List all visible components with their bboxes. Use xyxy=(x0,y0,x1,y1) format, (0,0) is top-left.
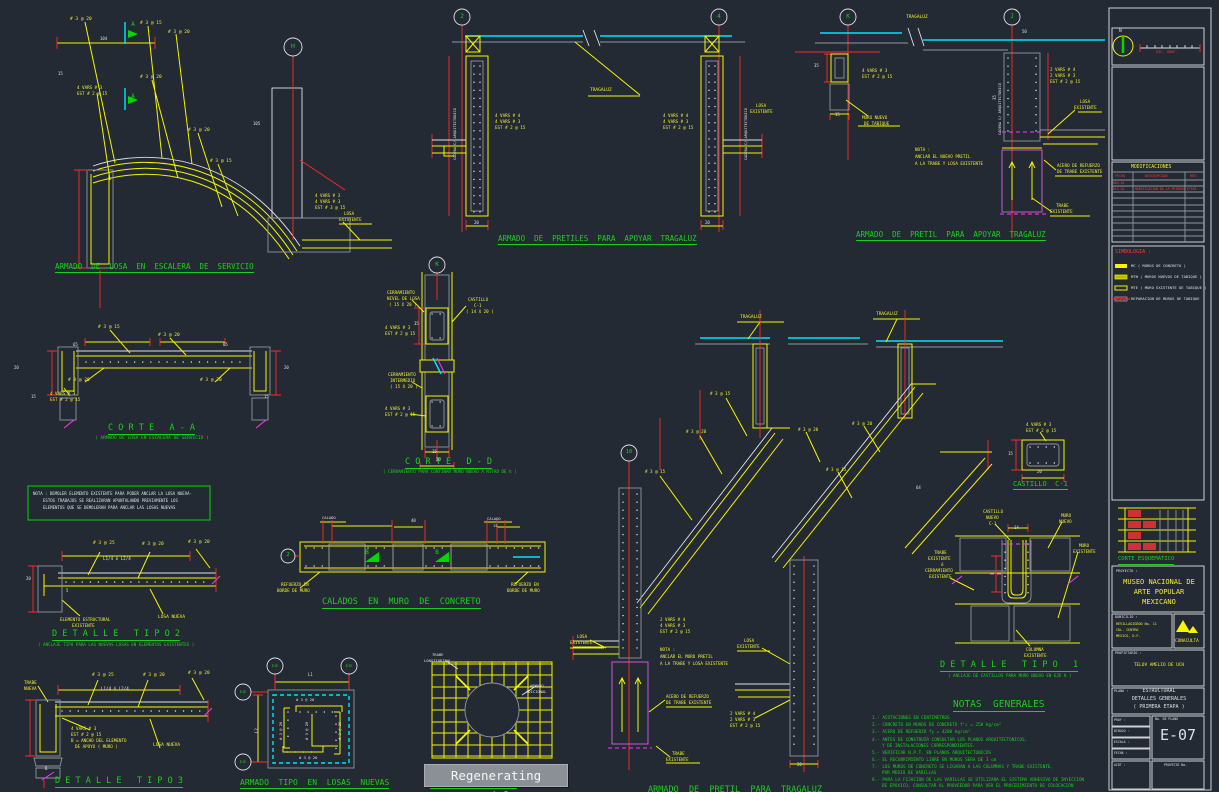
escalera-servicio-label: # 3 @ 20 xyxy=(188,129,210,134)
corte-aa-label: 65 xyxy=(73,343,78,347)
pretil-tragaluz-eje10-label: # 3 @ 15 xyxy=(710,392,730,396)
detail-titles-label: ARMADO TIPO EN LOSAS NUEVAS xyxy=(240,779,389,789)
pretil-kj-label: EST # 2 @ 15 xyxy=(862,75,892,79)
escalera-servicio-label: 15 xyxy=(58,72,63,76)
corte-bb-label: ARMADO xyxy=(530,684,544,688)
pretil-kj-label: A LA TRABE Y LOSA EXISTENTE xyxy=(915,162,983,166)
sheet-panel-label: PROYECTO : xyxy=(1116,570,1138,574)
escalera-servicio-label: # 3 @ 20 xyxy=(70,18,92,23)
escalera-servicio-label: LOSA xyxy=(344,212,354,216)
detalle-tipo-3-label: B = ANCHO DEL ELEMENTO xyxy=(71,739,126,743)
sheet-panel-label: ESC. GRAF. xyxy=(1156,51,1178,55)
pretil-tragaluz-eje10-label: EXISTENTE xyxy=(666,758,689,762)
sheet-panel-label: ( PRIMERA ETAPA ) xyxy=(1112,705,1206,710)
axis-bubbles-label: 4 xyxy=(711,14,727,20)
sheet-panel-label: COL. CENTRO xyxy=(1116,629,1138,632)
pretil-kj-label: TRAGALUZ xyxy=(906,16,928,21)
corte-bb-label: LONGITUDINAL xyxy=(424,659,451,663)
nota-demolicion-label: ELEMENTOS QUE SE DEMOLERAN PARA ANCLAR L… xyxy=(43,506,175,510)
sheet-panel-label: DIC-02 xyxy=(1113,188,1125,191)
detail-titles-label: ( CERRAMIENTO PARA CONFINAR MURO NUEVO A… xyxy=(383,470,517,474)
pretil-tragaluz-eje10-label: # 3 @ 20 xyxy=(798,428,818,432)
pretil-tragaluz-eje10-label: 4 VARS # 3 xyxy=(660,624,685,628)
pretil-tragaluz-eje10-label: TRAGALUZ xyxy=(740,316,762,321)
pretil-tragaluz-eje10-label: DE TRABE EXISTENTE xyxy=(666,701,711,705)
detalle-tipo-1-label: MURO xyxy=(1079,544,1089,548)
detalle-tipo-2-label: ELEMENTO ESTRUCTURAL xyxy=(60,618,110,622)
pretil-kj-label: ACERO DE REFUERZO xyxy=(1057,164,1100,168)
sheet-panel-label: MTE ( MURO EXISTENTE DE TABIQUE ) xyxy=(1131,286,1206,290)
armado-losas-nuevas-label: L1 xyxy=(308,673,313,677)
pretiles-tragaluz-label: 20 xyxy=(474,221,479,225)
axis-bubbles-label: EJE xyxy=(235,760,251,764)
sheet-panel-label: MEXICANO xyxy=(1112,599,1206,606)
pretiles-tragaluz-label: EXISTENTE xyxy=(750,110,773,114)
pretil-kj-label: ANCLAR EL NUEVO PRETIL xyxy=(915,155,970,159)
corte-dd-label: EST # 2 @ 15 xyxy=(385,413,415,417)
notas-generales-label: Y DE INSTALACIONES CORRESPONDIENTES. xyxy=(882,745,975,749)
escalera-servicio-label: EXISTENTE xyxy=(339,218,362,222)
sheet-panel-label: E-07 xyxy=(1152,728,1204,743)
notas-generales-label: 2.- CONCRETO EN MUROS DE CONCRETO f'c = … xyxy=(872,724,1001,728)
pretil-tragaluz-eje10-label: # 3 @ 15 xyxy=(826,468,846,472)
corte-dd-label: 20 xyxy=(436,458,441,462)
detail-titles-label: D E T A L L E T I P O 1 xyxy=(940,661,1078,672)
axis-bubbles-label: K xyxy=(840,14,856,20)
pretil-kj-label: EST # 2 @ 15 xyxy=(1050,80,1080,84)
corte-aa-label: 15 xyxy=(31,395,36,399)
pretil-kj-label: EXISTENTE xyxy=(1050,210,1073,214)
escalera-servicio-label: # 3 @ 20 xyxy=(140,76,162,81)
detalle-tipo-3-label: # 3 @ 25 xyxy=(92,674,114,679)
detalle-tipo-2-label: 5 xyxy=(66,589,68,593)
cad-model-space[interactable]: ARMADO DE LOSA EN ESCALERA DE SERVICIOAR… xyxy=(0,0,1219,792)
pretiles-tragaluz-label: CADENA C/ ARQUITECTONICO xyxy=(454,108,458,160)
pretil-tragaluz-eje10-label: ANCLAR EL MURO PRETIL xyxy=(660,655,713,659)
sheet-panel-label: MODIFICACION DE LA PRIMERA ETAPA xyxy=(1135,188,1196,191)
sheet-panel-label: MTN ( MUROS NUEVOS DE TABIQUE ) xyxy=(1131,275,1202,279)
pretil-tragaluz-eje10-label: EXISTENTE xyxy=(570,641,593,645)
corte-aa-label: 20 xyxy=(284,366,289,370)
axis-bubbles-label: 2 xyxy=(281,553,295,559)
corte-aa-label: 65 xyxy=(223,343,228,347)
detail-titles-label: D E T A L L E T I P O 2 xyxy=(52,630,180,641)
nota-demolicion-label: ESTOS TRABAJOS SE REALIZARAN APUNTALANDO… xyxy=(43,499,178,503)
sheet-panel-label: FECHA : xyxy=(1114,752,1127,755)
pretil-kj-label: LOSA xyxy=(1080,100,1090,104)
pretil-tragaluz-eje10-label: TRAGALUZ xyxy=(876,313,898,318)
detalle-tipo-1-label: EXISTENTE xyxy=(928,557,951,561)
sheet-panel-label: DOMICILIO : xyxy=(1115,616,1137,619)
detalle-tipo-2-label: EXISTENTE xyxy=(72,624,95,628)
notas-generales-label: 4.- ANTES DE CONSTRUIR CONSULTAR LOS PLA… xyxy=(872,739,1027,743)
pretiles-tragaluz-label: EST # 2 @ 15 xyxy=(663,126,693,130)
notas-generales-label: 6.- EL RECUBRIMIENTO LIBRE EN MUROS SERA… xyxy=(872,759,996,763)
corte-dd-label: 15 xyxy=(432,450,437,454)
detail-titles-label: C O R T E D - D xyxy=(405,458,492,469)
pretiles-tragaluz-label: 4 VARS # 3 xyxy=(495,120,520,124)
axis-bubbles-label: A xyxy=(128,94,138,100)
detalle-tipo-3-label: L1/4 ó L2/4 xyxy=(101,687,129,691)
notas-generales-label: 8.- PARA LA FIJACION DE LAS VARILLAS SE … xyxy=(872,779,1084,783)
detail-titles-label: ( ARMADO DE LOSA EN ESCALERA DE SERVICIO… xyxy=(95,437,209,442)
detail-titles-label: ( ANCLAJE DE CASTILLOS PARA MURO NUEVO E… xyxy=(948,674,1072,678)
pretil-tragaluz-eje10-label: EST # 2 @ 15 xyxy=(660,630,690,634)
corte-dd-label: 35 xyxy=(414,322,419,326)
sheet-panel-label: MC ( MUROS DE CONCRETO ) xyxy=(1131,264,1186,268)
axis-bubbles-label: 10 xyxy=(621,450,637,456)
corte-aa-label: # 3 @ 20 xyxy=(200,379,222,384)
corte-bb-label: TRABE xyxy=(432,653,443,657)
pretil-tragaluz-eje10-label: # 3 @ 15 xyxy=(645,470,665,474)
detalle-tipo-2-label: # 3 @ 20 xyxy=(188,541,210,546)
nota-demolicion-label: NOTA : DEMOLER ELEMENTO EXISTENTE PARA P… xyxy=(33,492,192,496)
pretil-tragaluz-eje10-label: # 3 @ 20 xyxy=(852,422,872,426)
detalle-tipo-1-label: COLUMNA xyxy=(1026,648,1044,652)
calados-muro-label: REFUERZO EN xyxy=(281,583,309,587)
escalera-servicio-label: # 3 @ 15 xyxy=(140,22,162,27)
detalle-tipo-1-label: 14 xyxy=(1014,526,1019,530)
pretil-kj-label: EXISTENTE xyxy=(1074,106,1097,110)
armado-losas-nuevas-label: L2 xyxy=(255,728,259,733)
sheet-panel-label: CONACULTA xyxy=(1175,640,1199,644)
detail-titles-label: ARMADO DE LOSA EN ESCALERA DE SERVICIO xyxy=(55,263,254,273)
detalle-tipo-1-label: TRABE xyxy=(934,551,947,555)
sheet-panel-label: No. DE PLANO xyxy=(1155,718,1178,721)
corte-dd-label: 4 VARS # 3 xyxy=(385,326,410,330)
axis-bubbles-label: A xyxy=(128,22,138,28)
corte-aa-label: # 3 @ 15 xyxy=(98,326,120,331)
detail-titles-label: CORTE ESQUEMATICO xyxy=(1118,557,1174,565)
pretil-tragaluz-eje10-label: LOSA xyxy=(744,639,754,643)
sheet-panel-label: MODIFICACIONES xyxy=(1131,166,1171,171)
detalle-tipo-1-label: EXISTENTE xyxy=(1073,550,1096,554)
sheet-panel-label: MEXICO, D.F. xyxy=(1116,635,1141,638)
pretil-tragaluz-eje10-label: ACERO DE REFUERZO xyxy=(666,695,709,699)
pretil-kj-label: CADENA C/ ARQUITECTONICO xyxy=(999,83,1003,135)
sheet-panel-label: ESTRUCTURAL xyxy=(1112,689,1206,694)
armado-losas-nuevas-label: # 3 @ 20 xyxy=(338,722,342,740)
armado-losas-nuevas-label: # 3 @ 20 xyxy=(296,698,314,702)
armado-losas-nuevas-label: # 3 @ 20 xyxy=(305,722,309,740)
escalera-servicio-label: # 3 @ 15 xyxy=(210,160,232,165)
sheet-panel-label: MUSEO NACIONAL DE xyxy=(1112,579,1206,586)
calados-muro-label: REFUERZO EN xyxy=(511,583,539,587)
armado-losas-nuevas-label: # 3 @ 20 xyxy=(299,756,317,760)
corte-bb-label: ADICIONAL xyxy=(526,690,547,694)
corte-dd-label: ( 15 X 20 ) xyxy=(390,385,418,389)
pretil-tragaluz-eje10-label: 2 VARS # 3 xyxy=(730,718,755,722)
corte-dd-label: CASTILLO xyxy=(468,298,488,302)
axis-bubbles-label: B xyxy=(432,550,442,556)
pretil-kj-label: 2 VARS # 3 xyxy=(1050,74,1075,78)
detalle-tipo-3-label: DE APOYO ( MURO ) xyxy=(75,745,118,749)
detalle-tipo-1-label: NUEVO xyxy=(986,516,999,520)
axis-bubbles-label: J xyxy=(1004,14,1020,20)
detalle-tipo-3-label: LOSA NUEVA xyxy=(153,744,180,749)
escalera-servicio-label: 4 VARS # 3 xyxy=(315,194,340,198)
escalera-servicio-label: 105 xyxy=(253,122,260,126)
detalle-tipo-1-label: EXISTENTE xyxy=(929,575,952,579)
pretiles-tragaluz-label: 4 VARS # 4 xyxy=(663,114,688,118)
pretil-kj-label: MURO NUEVO xyxy=(862,116,887,120)
corte-dd-label: CERRAMIENTO xyxy=(387,291,415,295)
sheet-panel-label: DESCRIPCION xyxy=(1145,175,1167,178)
pretil-kj-label: 35 xyxy=(814,64,819,68)
axis-bubbles-label: 2 xyxy=(454,14,470,20)
axis-bubbles-label: H xyxy=(284,43,302,50)
pretil-kj-label: DE TRABE EXISTENTE xyxy=(1057,170,1102,174)
corte-dd-label: ( 14 X 20 ) xyxy=(466,310,494,314)
detail-titles-label: C O R T E A - A xyxy=(108,424,195,435)
escalera-servicio-label: 4 VARS # 3 xyxy=(315,200,340,204)
detail-titles-label: ARMADO DE PRETILES PARA APOYAR TRAGALUZ xyxy=(498,235,697,245)
castillo-c1-label: 15 xyxy=(1008,452,1013,456)
axis-bubbles-label: B xyxy=(362,550,372,556)
pretil-tragaluz-eje10-label: 2 VARS # 4 xyxy=(730,712,755,716)
pretiles-tragaluz-label: 20 xyxy=(705,221,710,225)
detalle-tipo-3-label: 4 VARS # 3 xyxy=(71,727,96,731)
detalle-tipo-2-label: LOSA NUEVA xyxy=(158,616,185,621)
pretil-kj-label: 4 VARS # 3 xyxy=(862,69,887,73)
notas-generales-label: 7.- LOS MUROS DE CONCRETO SE LIGARAN A L… xyxy=(872,766,1053,770)
sheet-panel-label: DIBUJO : xyxy=(1114,730,1129,733)
detail-titles-label: NOTAS GENERALES xyxy=(953,700,1045,712)
corte-dd-label: INTERMEDIO xyxy=(390,379,415,383)
pretil-tragaluz-eje10-label: 64 xyxy=(916,486,921,490)
calados-muro-label: 15 xyxy=(493,524,498,528)
corte-aa-label: # 3 @ 20 xyxy=(158,334,180,339)
detalle-tipo-1-label: CERRAMIENTO xyxy=(925,569,953,573)
pretil-kj-label: 2 VARS # 4 xyxy=(1050,68,1075,72)
detalle-tipo-3-label: B xyxy=(45,767,47,771)
pretil-tragaluz-eje10-label: TRABE xyxy=(672,752,685,756)
corte-aa-label: 20 xyxy=(14,366,19,370)
sheet-panel-label: PROY : xyxy=(1114,719,1126,722)
detail-titles-label: CASTILLO C-1 xyxy=(1013,481,1068,490)
notas-generales-label: 3.- ACERO DE REFUERZO fy = 4200 kg/cm² xyxy=(872,731,970,735)
notas-generales-label: DE EPOXICO, CONSULTAR AL PROVEEDOR PARA … xyxy=(882,785,1073,789)
pretiles-tragaluz-label: 4 VARS # 4 xyxy=(495,114,520,118)
sheet-panel-label: PROPIETARIO : xyxy=(1115,652,1142,655)
detalle-tipo-2-label: L1/4 ó L2/4 xyxy=(103,557,131,561)
pretiles-tragaluz-label: TRAGALUZ xyxy=(590,89,612,94)
pretil-tragaluz-eje10-label: A LA TRABE Y LOSA EXISTENTE xyxy=(660,662,728,666)
sheet-panel-label: DETALLES GENERALES xyxy=(1112,697,1206,702)
detalle-tipo-1-label: C-1 xyxy=(989,522,997,526)
axis-bubbles-label: K xyxy=(429,262,445,268)
pretil-tragaluz-eje10-label: 2 VARS # 4 xyxy=(660,618,685,622)
calados-muro-label: BORDE DE MURO xyxy=(277,589,310,593)
sheet-panel-label: ACOT : xyxy=(1114,764,1126,767)
sheet-panel-label: FECHA xyxy=(1115,175,1125,178)
pretiles-tragaluz-label: LOSA xyxy=(756,104,766,108)
annotation-layer: ARMADO DE LOSA EN ESCALERA DE SERVICIOAR… xyxy=(0,0,1219,792)
detalle-tipo-1-label: ó xyxy=(941,563,944,567)
detail-titles-label: ( ANCLAJE TIPO PARA LAS NUEVAS LOSAS EN … xyxy=(38,643,194,647)
notas-generales-label: 5.- VERIFICAR N.P.T. EN PLANOS ARQUITECT… xyxy=(872,752,991,756)
detalle-tipo-1-label: EXISTENTE xyxy=(1024,654,1047,658)
notas-generales-label: 1.- ACOTACIONES EN CENTIMETROS xyxy=(872,717,950,721)
detalle-tipo-3-label: TRABE xyxy=(24,681,37,685)
pretil-tragaluz-eje10-label: LOSA xyxy=(577,635,587,639)
castillo-c1-label: 4 VARS # 3 xyxy=(1026,423,1051,427)
corte-dd-label: ( 15 X 20 ) xyxy=(389,303,417,307)
notas-generales-label: POR MEDIO DE VARILLAS xyxy=(882,772,936,776)
detalle-tipo-2-label: # 3 @ 25 xyxy=(93,542,115,547)
detalle-tipo-1-label: NUEVO xyxy=(1059,520,1072,524)
corte-dd-label: C-1 xyxy=(474,304,482,308)
detalle-tipo-3-label: # 3 @ 20 xyxy=(143,674,165,679)
detalle-tipo-3-label: NUEVA xyxy=(24,687,37,691)
pretil-tragaluz-eje10-label: NOTA : xyxy=(660,648,675,652)
axis-bubbles-label: EJE xyxy=(235,690,251,694)
castillo-c1-label: 20 xyxy=(1037,470,1042,474)
status-tooltip: Regenerating model. xyxy=(424,764,568,787)
calados-muro-label: CALADO xyxy=(487,517,501,521)
corte-dd-label: NIVEL DE LOSA xyxy=(387,297,420,301)
corte-dd-label: CERRAMIENTO xyxy=(388,373,416,377)
detalle-tipo-1-label: CASTILLO xyxy=(983,510,1003,514)
escalera-servicio-label: 104 xyxy=(100,37,107,41)
detalle-tipo-3-label: # 3 @ 20 xyxy=(188,672,210,677)
detalle-tipo-1-label: MURO xyxy=(1061,514,1071,518)
pretil-kj-label: 50 xyxy=(1022,30,1027,34)
sheet-panel-label: PROYECTO No. xyxy=(1164,764,1187,767)
calados-muro-label: CALADO xyxy=(322,516,336,520)
pretil-tragaluz-eje10-label: 20 xyxy=(797,763,802,767)
detail-titles-label: CALADOS EN MURO DE CONCRETO xyxy=(322,598,481,609)
escalera-servicio-label: EST # 3 @ 15 xyxy=(315,206,345,210)
corte-aa-label: 4 VARS # 3 xyxy=(50,392,75,396)
pretil-kj-label: 15 xyxy=(835,113,840,117)
calados-muro-label: 40 xyxy=(411,519,416,523)
escalera-servicio-label: # 3 @ 20 xyxy=(168,31,190,36)
calados-muro-label: BORDE DE MURO xyxy=(507,589,540,593)
corte-aa-label: 15 xyxy=(264,395,269,399)
axis-bubbles-label: EJE xyxy=(341,664,357,668)
pretiles-tragaluz-label: 4 VARS # 3 xyxy=(663,120,688,124)
sheet-panel-label: REPARACION DE MUROS DE TABIQUE xyxy=(1131,297,1200,301)
corte-aa-label: # 3 @ 20 xyxy=(68,379,90,384)
castillo-c1-label: EST # 2 @ 15 xyxy=(1026,429,1056,433)
detalle-tipo-2-label: # 3 @ 20 xyxy=(142,543,164,548)
pretiles-tragaluz-label: EST # 2 @ 15 xyxy=(495,126,525,130)
corte-dd-label: EST # 2 @ 15 xyxy=(385,332,415,336)
pretil-kj-label: TRABE xyxy=(1056,204,1069,208)
armado-losas-nuevas-label: # 3 @ 20 xyxy=(279,722,283,740)
escalera-servicio-label: EST # 2 @ 15 xyxy=(77,92,107,96)
detail-titles-label: ARMADO DE PRETIL PARA APOYAR TRAGALUZ xyxy=(856,231,1046,241)
sheet-panel-label: REVILLAGIGEDO No. 11 xyxy=(1116,623,1157,626)
detail-titles-label: ARMADO DE PRETIL PARA TRAGALUZ xyxy=(648,786,822,792)
detalle-tipo-2-label: 20 xyxy=(26,577,31,581)
sheet-panel-label: ESCALA : xyxy=(1114,741,1129,744)
sheet-panel-label: ARTE POPULAR xyxy=(1112,589,1206,596)
pretil-tragaluz-eje10-label: EXISTENTE xyxy=(737,645,760,649)
sheet-panel-label: SIMBOLOGIA : xyxy=(1115,250,1151,255)
corte-dd-label: 4 VARS # 3 xyxy=(385,407,410,411)
detalle-tipo-3-label: EST # 2 @ 15 xyxy=(71,733,101,737)
axis-bubbles-label: EJE xyxy=(267,664,283,668)
sheet-panel-label: REV xyxy=(1190,175,1196,178)
sheet-panel-label: N xyxy=(1119,30,1122,35)
detail-titles-label: D E T A L L E T I P O 3 xyxy=(55,777,183,788)
pretil-kj-label: DE TABIQUE xyxy=(864,122,889,126)
pretiles-tragaluz-label: CADENA C/ ARQUITECTONICO xyxy=(745,108,749,160)
pretil-kj-label: 35 xyxy=(993,95,997,100)
sheet-panel-label: TELOV AMELIO DE UCH xyxy=(1112,664,1206,668)
corte-aa-label: EST # 2 @ 15 xyxy=(50,398,80,402)
escalera-servicio-label: 4 VARS # 3 xyxy=(77,86,102,90)
pretil-tragaluz-eje10-label: EST # 2 @ 15 xyxy=(730,724,760,728)
sheet-panel-label: NOV-02 xyxy=(1113,182,1125,185)
pretil-tragaluz-eje10-label: # 3 @ 20 xyxy=(686,430,706,434)
pretil-kj-label: NOTA : xyxy=(915,148,930,152)
